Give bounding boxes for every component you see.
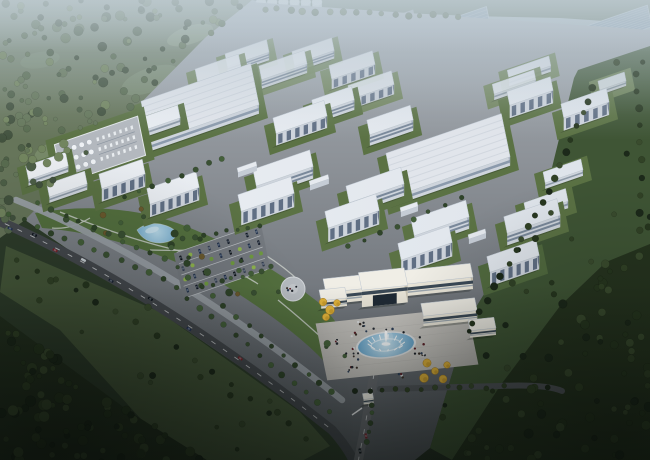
- aerial-scene-canvas: [0, 0, 650, 460]
- aerial-industrial-park-render: [0, 0, 650, 460]
- atmosphere-overlays: [0, 0, 650, 460]
